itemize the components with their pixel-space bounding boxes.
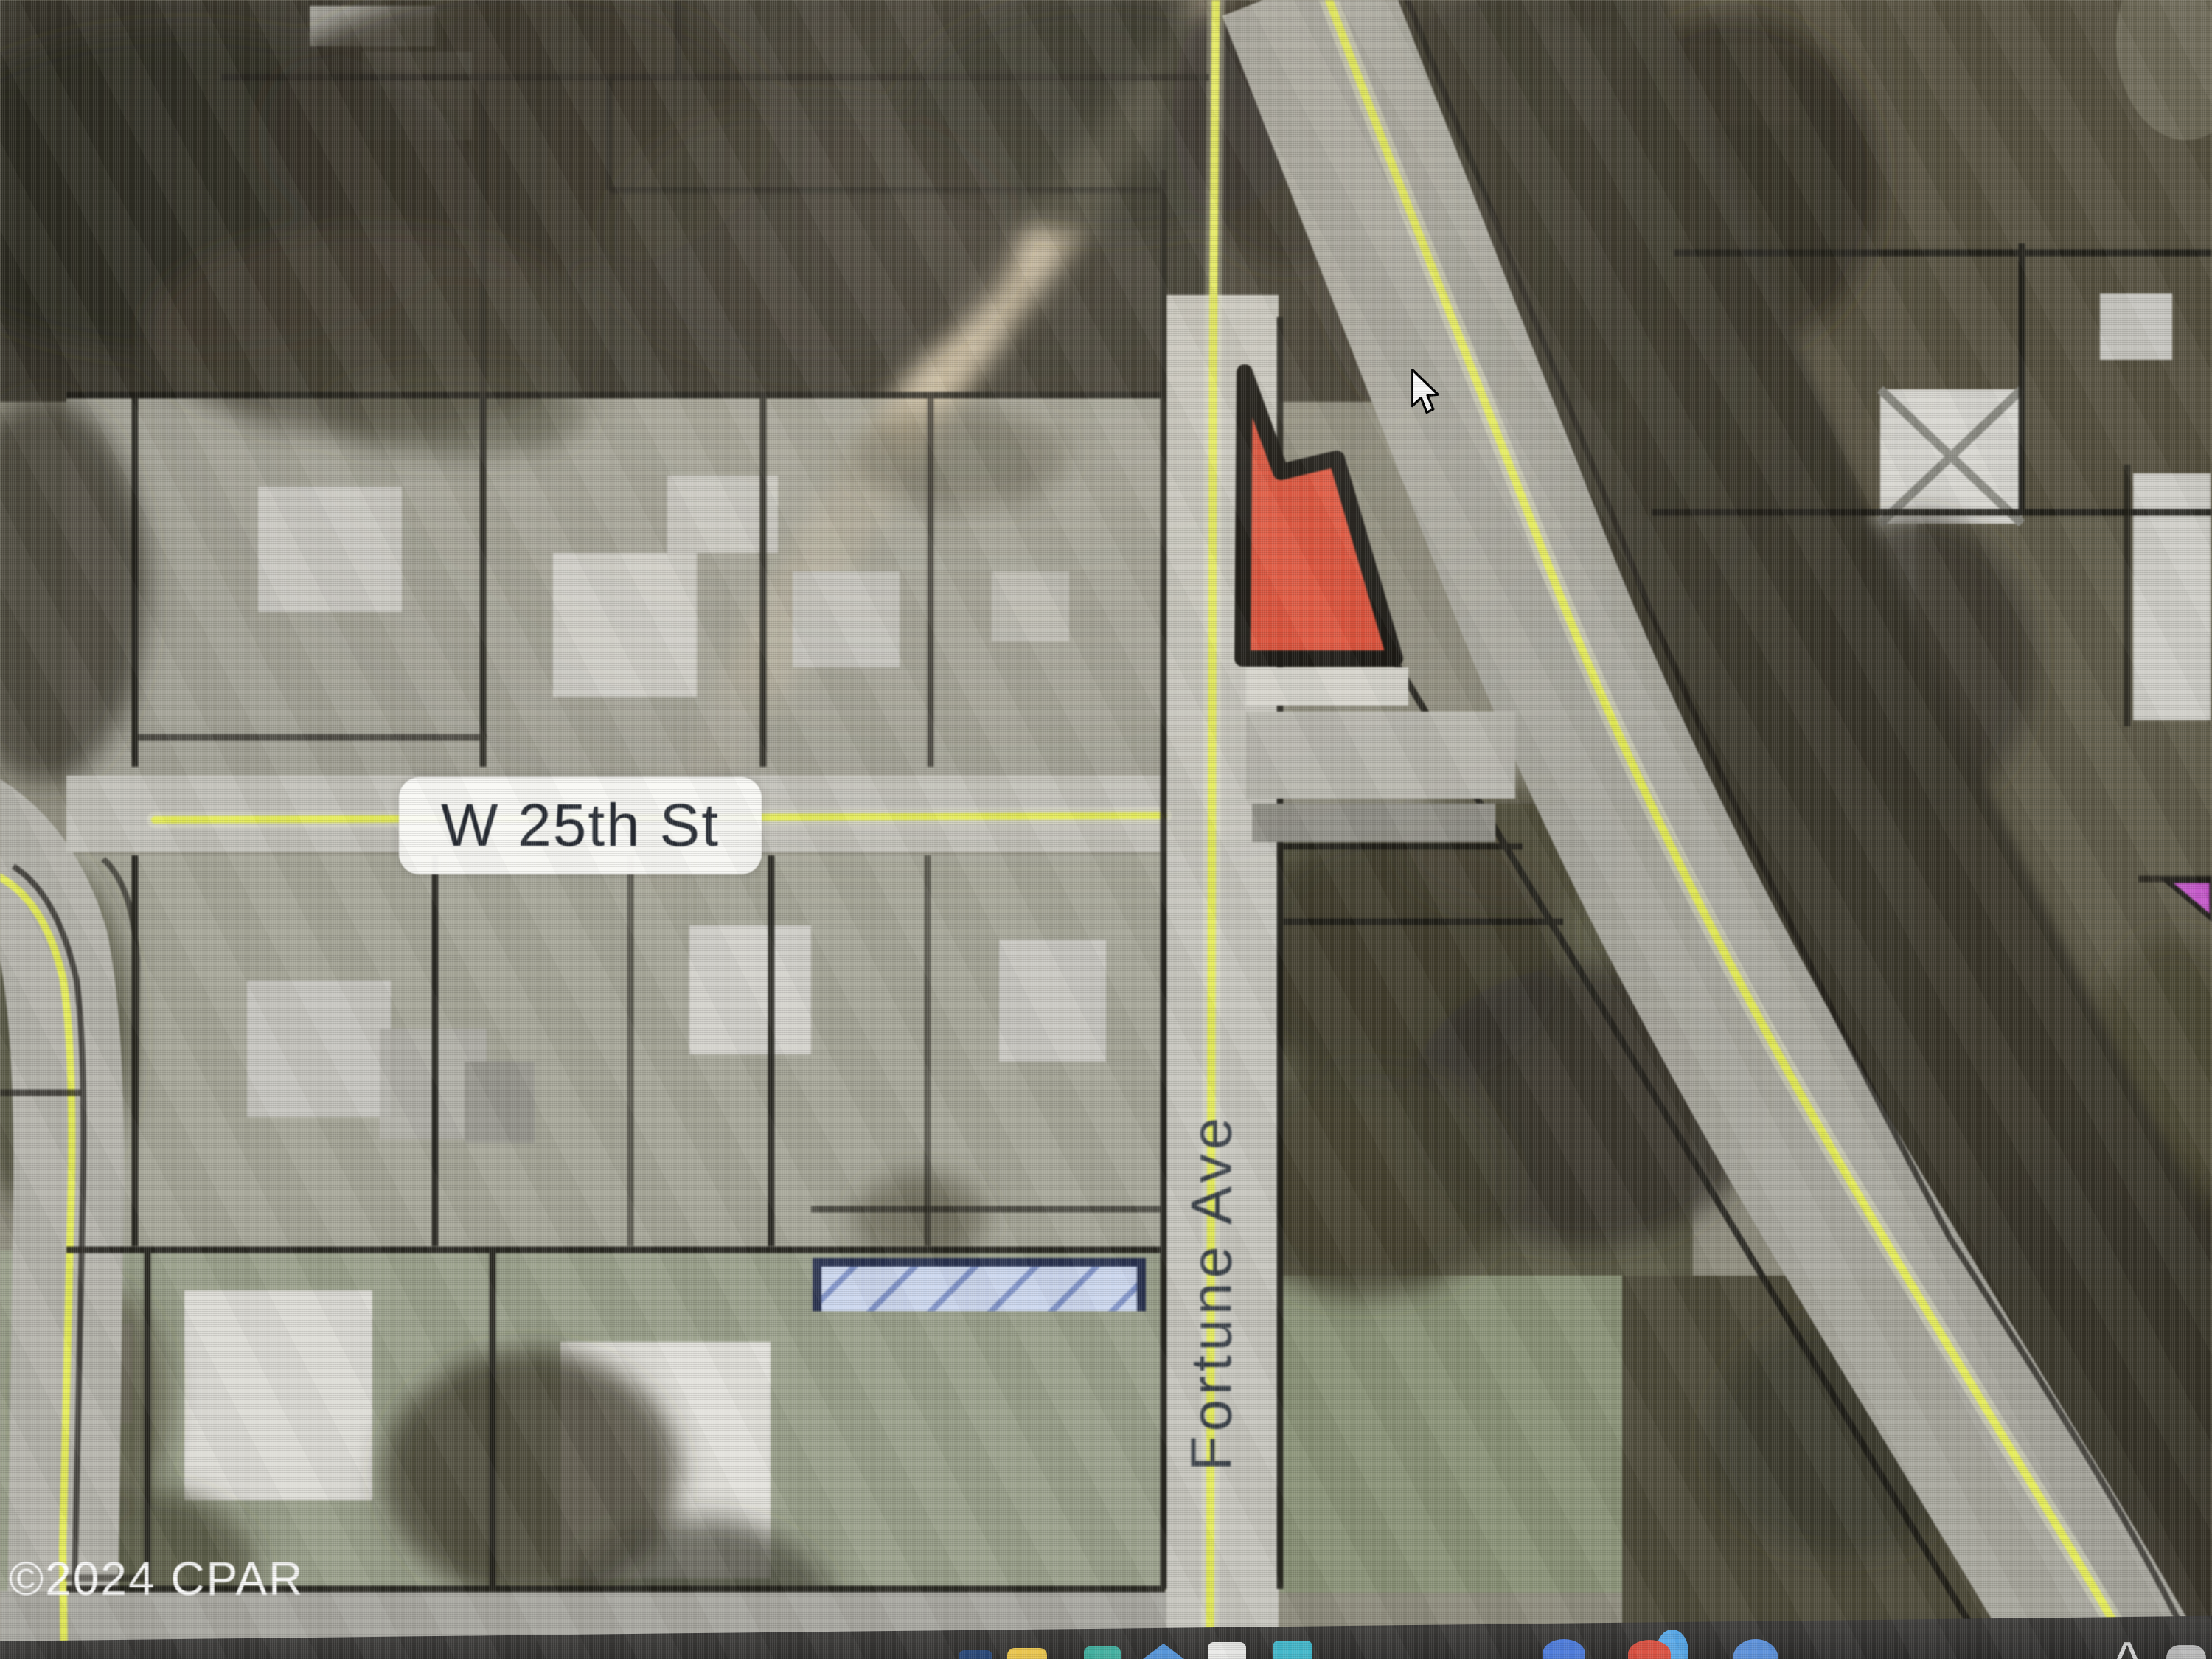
street-label-fortune: Fortune Ave [1156, 1034, 1267, 1550]
screen-glare [0, 0, 2212, 1659]
copyright-watermark-text: ©2024 CPAR [9, 1552, 304, 1605]
screen-photo-of-gis-map: W 25th St Fortune Ave ©2024 CPAR ^ [0, 0, 2212, 1659]
street-label-w25th: W 25th St [399, 777, 762, 874]
street-label-w25th-text: W 25th St [441, 791, 720, 860]
copyright-watermark: ©2024 CPAR [9, 1551, 304, 1606]
street-label-fortune-text: Fortune Ave [1178, 1113, 1245, 1470]
aerial-parcel-map[interactable] [0, 0, 2212, 1659]
